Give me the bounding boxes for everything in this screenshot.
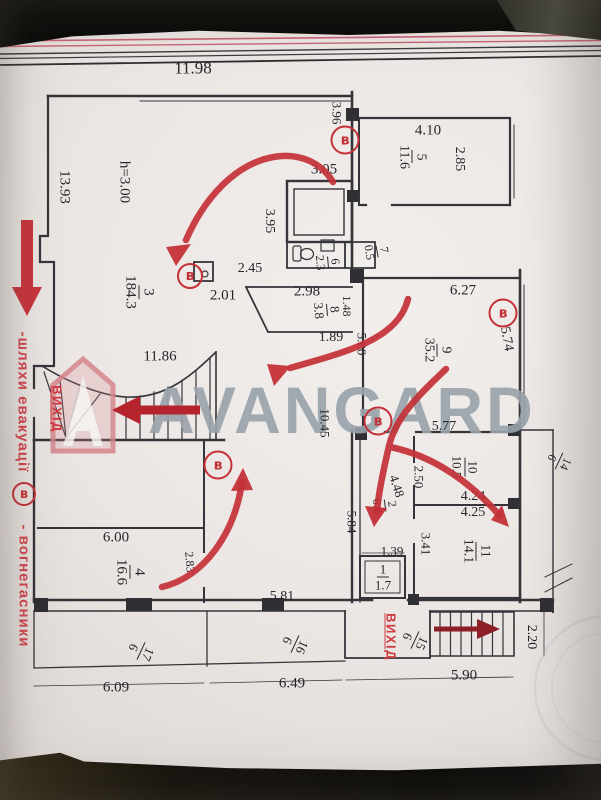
evacuation-arrow-center: [290, 299, 408, 368]
evacuation-arrow-room4: [162, 482, 242, 587]
evacuation-arrow-hall: [186, 156, 333, 240]
floor-plan-photo: AVANGARD -шляхи евакуації: [0, 0, 601, 800]
evacuation-arrow-corridor: [377, 369, 446, 512]
arrowheads: [166, 244, 509, 527]
evacuation-arrow-room10: [390, 447, 500, 516]
legend-extinguisher-symbol: в: [12, 482, 36, 506]
evacuation-annotations: [0, 0, 601, 800]
straight-arrows: [12, 220, 500, 639]
legend-extinguisher-label: - вогнегасники: [16, 525, 33, 648]
legend-evacuation-route-label: -шляхи евакуації: [15, 332, 32, 473]
